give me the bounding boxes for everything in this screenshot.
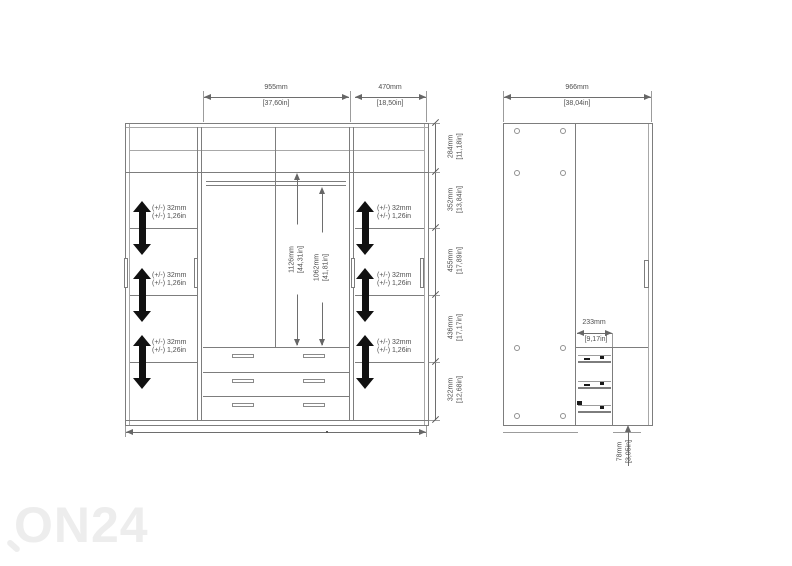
drawer-slide-stop [577, 401, 582, 405]
cam-hole [514, 413, 520, 419]
drawer-module-front-line [612, 347, 613, 425]
front-left-panel-inner-line [129, 124, 130, 425]
arrowhead [294, 339, 300, 346]
front-top-rail-line [129, 150, 424, 151]
on24-watermark-logo: ON24 [14, 496, 149, 554]
bottom-dimension-line [126, 432, 426, 433]
drawer-slide-stop [584, 358, 590, 360]
shelf-adjust-label: (+/-) 32mm(+/-) 1,26in [152, 339, 186, 355]
height-chain-label-3: 436mm[17,17in] [448, 298, 465, 358]
height-chain-label-2: 455mm[17,89in] [448, 231, 465, 291]
drawer-slide-stop [600, 382, 604, 385]
drawer-slide-line [578, 387, 611, 389]
door-handle [351, 258, 355, 288]
drawer-divider-line [203, 396, 349, 397]
shelf-adjust-arrow [356, 201, 374, 255]
side-partition-line [575, 124, 576, 425]
height-chain-label-0: 284mm[11,18in] [448, 117, 465, 177]
center-door-split-line [275, 127, 276, 347]
arrowhead [126, 429, 133, 435]
dim-label-drawer-depth-mm: 233mm [564, 319, 624, 327]
drawer-divider-line [203, 372, 349, 373]
shelf-adjust-arrow [356, 335, 374, 389]
dimension-line-966 [504, 97, 651, 98]
chain-dot [326, 431, 328, 433]
drawer-handle [232, 354, 254, 358]
interior-dim-label-1126: 1126mm[44,31in] [289, 225, 306, 295]
dim-label-center-width-mm: 955mm [236, 84, 316, 92]
ground-line [503, 432, 578, 433]
cam-hole [560, 170, 566, 176]
shelf-adjust-label: (+/-) 32mm(+/-) 1,26in [152, 205, 186, 221]
drawer-slide-line [578, 411, 611, 413]
drawer-slide-line [578, 405, 611, 406]
extension-line [651, 91, 652, 122]
cam-hole [560, 345, 566, 351]
cam-hole [514, 170, 520, 176]
shelf-adjust-label: (+/-) 32mm(+/-) 1,26in [377, 339, 411, 355]
shelf-adjust-label: (+/-) 32mm(+/-) 1,26in [377, 272, 411, 288]
shelf-adjust-arrow [133, 335, 151, 389]
front-top-panel-inner-line [126, 127, 428, 128]
dim-label-center-width-in: [37,60in] [236, 100, 316, 108]
plinth-dim-label: 78mm[3,05in] [617, 430, 634, 474]
drawer-slide-line [578, 355, 611, 356]
cam-hole [514, 128, 520, 134]
front-top-shelf-line [126, 172, 428, 173]
front-plinth-line [126, 420, 428, 421]
extension-line [612, 333, 613, 347]
drawer-slide-stop [584, 384, 590, 386]
dim-label-right-width-in: [18,50in] [350, 100, 430, 108]
arrowhead [319, 187, 325, 194]
door-handle-side [644, 260, 649, 288]
arrowhead [204, 94, 211, 100]
drawer-handle [232, 403, 254, 407]
drawer-handle [232, 379, 254, 383]
height-chain-label-4: 322mm[12,68in] [448, 360, 465, 420]
drawer-slide-line [578, 381, 611, 382]
cam-hole [560, 413, 566, 419]
dim-label-drawer-depth-in: [9,17in] [566, 336, 626, 344]
drawer-slide-stop [600, 356, 604, 359]
extension-line [426, 426, 427, 437]
hanging-rail [206, 181, 346, 186]
cam-hole [560, 128, 566, 134]
dim-label-depth-in: [38,04in] [537, 100, 617, 108]
height-chain-label-1: 352mm[13,84in] [448, 170, 465, 230]
cam-hole [514, 345, 520, 351]
shelf-adjust-arrow [133, 268, 151, 322]
shelf-adjust-arrow [133, 201, 151, 255]
shelf-adjust-label: (+/-) 32mm(+/-) 1,26in [152, 272, 186, 288]
drawer-top-line [203, 347, 349, 348]
door-handle [124, 258, 128, 288]
door-handle [194, 258, 198, 288]
arrowhead [504, 94, 511, 100]
dimension-line-470 [355, 97, 426, 98]
arrowhead [319, 339, 325, 346]
drawer-handle [303, 403, 325, 407]
arrowhead [342, 94, 349, 100]
door-handle [420, 258, 424, 288]
drawer-slide-stop [600, 406, 604, 409]
drawer-handle [303, 379, 325, 383]
height-chain-line [435, 123, 436, 420]
front-right-panel-inner-line [424, 124, 425, 425]
interior-dim-label-1062: 1062mm[41,81in] [314, 233, 331, 303]
dim-label-right-width-mm: 470mm [350, 84, 430, 92]
dim-label-depth-mm: 966mm [537, 84, 617, 92]
drawer-slide-line [578, 361, 611, 363]
arrowhead [294, 173, 300, 180]
arrowhead [644, 94, 651, 100]
shelf-adjust-label: (+/-) 32mm(+/-) 1,26in [377, 205, 411, 221]
wardrobe-dimension-drawing: (+/-) 32mm(+/-) 1,26in (+/-) 32mm(+/-) 1… [0, 0, 792, 566]
shelf-adjust-arrow [356, 268, 374, 322]
drawer-handle [303, 354, 325, 358]
arrowhead [419, 429, 426, 435]
dimension-line-955 [204, 97, 349, 98]
